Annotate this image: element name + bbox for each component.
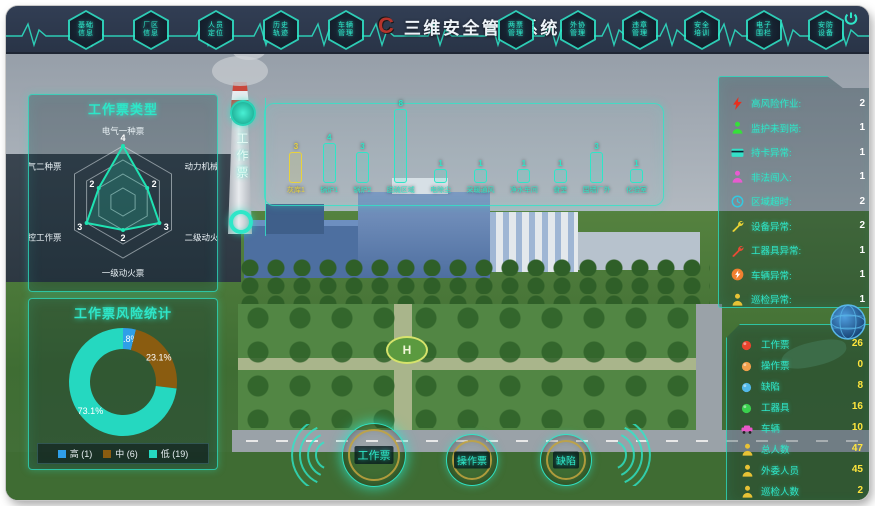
area-bar-column (474, 169, 487, 184)
globe-icon[interactable] (828, 302, 868, 342)
area-bar-label: 食堂 (553, 185, 567, 195)
radar-axis-label: 电气二种票 (29, 162, 62, 172)
topbar-menu-item[interactable]: 违章管理 (622, 10, 658, 50)
alert-row: 高风险作业:2 (719, 91, 869, 116)
stat-value: 10 (852, 422, 863, 433)
scene-building (266, 204, 324, 234)
menu-label-line1: 人员 (208, 22, 224, 31)
legend-text: 高 (1) (70, 447, 93, 460)
area-bar-label: 电除尘 (430, 185, 451, 195)
legend-swatch (149, 450, 157, 458)
legend-item: 中 (6) (103, 447, 138, 460)
alert-row: 非法闯入:1 (719, 165, 869, 190)
app-logo: C (378, 13, 394, 39)
menu-label-line2: 轨迹 (273, 30, 289, 39)
area-bar-label: 化验室 (626, 185, 647, 195)
area-bar: 1化验室 (626, 159, 647, 196)
legend-swatch (103, 450, 111, 458)
area-bar-value: 3 (360, 142, 364, 151)
bottom-button-defect[interactable]: 缺陷 (540, 434, 592, 486)
stat-label: 缺陷 (761, 379, 849, 393)
alert-value: 1 (859, 147, 865, 158)
topbar-menu-item[interactable]: 电子围栏 (746, 10, 782, 50)
lightning-icon (731, 97, 744, 110)
area-bar-column (434, 169, 447, 184)
radar-axis-label: 一级动火票 (102, 268, 145, 278)
alert-label: 监护未到岗: (751, 121, 852, 135)
stat-row: 外委人员45 (727, 459, 869, 480)
scene-smoke (212, 56, 268, 86)
warning-icon (731, 268, 744, 281)
person-icon (741, 485, 753, 497)
area-bar-column (323, 143, 336, 183)
arc-decoration-right (602, 424, 674, 486)
area-bar-label: 采暖通风 (467, 185, 495, 195)
menu-label-line1: 历史 (273, 22, 289, 31)
menu-hex-icon: 违章管理 (624, 12, 656, 48)
menu-label-line1: 两票 (508, 22, 524, 31)
alert-row: 监护未到岗:1 (719, 116, 869, 141)
person-icon (731, 121, 744, 134)
legend-text: 低 (19) (161, 447, 189, 460)
menu-hex-icon: 电子围栏 (748, 12, 780, 48)
stat-value: 8 (857, 380, 863, 391)
area-bar-value: 3 (294, 142, 298, 151)
topbar-right-menu: 两票管理外协管理违章管理安全培训电子围栏安防设备 (498, 10, 844, 50)
menu-label-line2: 围栏 (756, 30, 772, 39)
area-bar-column (394, 109, 407, 183)
stat-label: 操作票 (761, 358, 849, 372)
stat-value: 45 (852, 464, 863, 475)
alert-value: 1 (859, 269, 865, 280)
area-bar: 1电除尘 (430, 159, 451, 196)
alert-value: 2 (859, 98, 865, 109)
area-bar: 3锅炉2 (354, 142, 372, 196)
alert-value: 2 (859, 196, 865, 207)
menu-hex-icon: 安全培训 (686, 12, 718, 48)
area-bar-label: 灰库1 (287, 185, 305, 195)
car-icon (741, 422, 753, 434)
svg-text:2: 2 (120, 233, 125, 243)
menu-label-line2: 信息 (78, 30, 94, 39)
workticket-type-panel: 工作票类型 423232电气一种票动力机械票二级动火票一级动火票热控工作票电气二… (28, 94, 218, 292)
dot-icon (741, 380, 753, 392)
area-bar-column (356, 152, 369, 184)
legend-swatch (58, 450, 66, 458)
dot-icon (741, 359, 753, 371)
scene-trees (238, 258, 710, 306)
stats-panel: 工作票26操作票0缺陷8工器具16车辆10总人数47外委人员45巡检人数2 (726, 324, 869, 500)
svg-text:3: 3 (164, 222, 169, 232)
area-bar-value: 1 (438, 159, 442, 168)
bottom-button-label: 工作票 (355, 446, 394, 464)
bottom-button-label: 操作票 (454, 452, 490, 469)
stat-label: 巡检人数 (761, 484, 849, 498)
legend-item: 低 (19) (149, 447, 189, 460)
area-bar-value: 8 (399, 99, 403, 108)
menu-label-line2: 管理 (508, 30, 524, 39)
radar-axis-label: 电气一种票 (102, 126, 145, 136)
area-bar-label: 净水车间 (510, 185, 538, 195)
stat-label: 外委人员 (761, 463, 844, 477)
bottom-button-workticket[interactable]: 工作票 (342, 423, 406, 487)
area-bar-column (590, 152, 603, 184)
stat-label: 车辆 (761, 421, 844, 435)
menu-hex-icon: 车辆管理 (330, 12, 362, 48)
screenshot-root: H 基础信息厂区信息人员定位历史轨迹车辆管理 C 三维安全管控系统 两票管理外协… (0, 0, 875, 506)
area-bar-column (630, 169, 643, 184)
stat-row: 巡检人数2 (727, 480, 869, 500)
topbar-menu-item[interactable]: 基础信息 (68, 10, 104, 50)
area-ticket-panel: 3灰库14锅炉13锅炉28脱硫区域1电除尘1采暖通风1净水车间1食堂3围墙厂外1… (264, 103, 664, 206)
menu-label-line2: 管理 (338, 30, 354, 39)
menu-label-line2: 定位 (208, 30, 224, 39)
area-bar: 1采暖通风 (467, 159, 495, 196)
app-window: H 基础信息厂区信息人员定位历史轨迹车辆管理 C 三维安全管控系统 两票管理外协… (6, 6, 869, 500)
area-bar: 4锅炉1 (320, 133, 338, 195)
stat-row: 缺陷8 (727, 375, 869, 396)
scene-road (696, 304, 722, 434)
stat-row: 总人数47 (727, 438, 869, 459)
area-bar-label: 锅炉1 (320, 185, 338, 195)
area-bar-value: 1 (522, 159, 526, 168)
person-icon (741, 464, 753, 476)
alerts-panel: 高风险作业:2监护未到岗:1持卡异常:1非法闯入:1区域超时:2设备异常:2工器… (718, 76, 869, 308)
stat-row: 操作票0 (727, 354, 869, 375)
alert-label: 区域超时: (751, 194, 852, 208)
area-bar-label: 围墙厂外 (583, 185, 611, 195)
dot-icon (741, 338, 753, 350)
wrench-icon (731, 244, 744, 257)
stat-value: 47 (852, 443, 863, 454)
topbar-menu-item[interactable]: 外协管理 (560, 10, 596, 50)
menu-hex-icon: 外协管理 (562, 12, 594, 48)
bottom-button-label: 缺陷 (553, 452, 579, 469)
topbar-menu-item[interactable]: 历史轨迹 (263, 10, 299, 50)
alert-value: 1 (859, 171, 865, 182)
stat-value: 2 (857, 485, 863, 496)
alert-value: 1 (859, 245, 865, 256)
area-bar: 1食堂 (553, 159, 567, 196)
stats-list: 工作票26操作票0缺陷8工器具16车辆10总人数47外委人员45巡检人数2 (727, 325, 869, 500)
donut-legend: 高 (1)中 (6)低 (19) (37, 443, 209, 464)
legend-item: 高 (1) (58, 447, 93, 460)
topbar-menu-item[interactable]: 安防设备 (808, 10, 844, 50)
svg-text:3: 3 (77, 222, 82, 232)
menu-label-line1: 违章 (632, 22, 648, 31)
menu-label-line2: 设备 (818, 30, 834, 39)
svg-text:2: 2 (152, 179, 157, 189)
menu-label-line1: 车辆 (338, 22, 354, 31)
alert-label: 高风险作业: (751, 96, 852, 110)
alert-value: 2 (859, 220, 865, 231)
menu-hex-icon: 历史轨迹 (265, 12, 297, 48)
left-tab-label: 工作票 (234, 132, 251, 183)
person-icon (731, 170, 744, 183)
donut-slice-label: 23.1% (146, 352, 172, 362)
topbar-menu-item[interactable]: 安全培训 (684, 10, 720, 50)
area-bar-label: 锅炉2 (354, 185, 372, 195)
arc-decoration-left (268, 424, 340, 486)
topbar-left-menu: 基础信息厂区信息人员定位历史轨迹车辆管理 (68, 10, 364, 50)
alert-row: 区域超时:2 (719, 189, 869, 214)
clock-icon (731, 195, 744, 208)
area-bar-value: 1 (634, 159, 638, 168)
menu-label-line1: 厂区 (143, 22, 159, 31)
alert-label: 设备异常: (751, 219, 852, 233)
stat-row: 工器具16 (727, 396, 869, 417)
stat-value: 0 (857, 359, 863, 370)
left-tab-workticket[interactable]: 工作票 (222, 98, 266, 236)
workticket-risk-panel: 工作票风险统计 3.8%23.1%73.1% 高 (1)中 (6)低 (19) (28, 298, 218, 470)
menu-label-line1: 安防 (818, 22, 834, 31)
menu-label-line1: 安全 (694, 22, 710, 31)
alert-row: 车辆异常:1 (719, 263, 869, 288)
menu-hex-icon: 两票管理 (500, 12, 532, 48)
person-icon (741, 443, 753, 455)
menu-hex-icon: 基础信息 (70, 12, 102, 48)
legend-text: 中 (6) (115, 447, 138, 460)
topbar-menu-item[interactable]: 车辆管理 (328, 10, 364, 50)
tab-ring-icon (229, 210, 253, 234)
card-icon (731, 146, 744, 159)
alert-label: 持卡异常: (751, 145, 852, 159)
alert-value: 1 (859, 122, 865, 133)
menu-label-line1: 基础 (78, 22, 94, 31)
alert-label: 车辆异常: (751, 268, 852, 282)
topbar-menu-item[interactable]: 两票管理 (498, 10, 534, 50)
radar-axis-label: 动力机械票 (184, 162, 217, 172)
power-icon[interactable] (843, 11, 859, 27)
wrench-icon (731, 219, 744, 232)
menu-label-line2: 培训 (694, 30, 710, 39)
stat-row: 车辆10 (727, 417, 869, 438)
menu-hex-icon: 厂区信息 (135, 12, 167, 48)
alert-row: 设备异常:2 (719, 214, 869, 239)
area-bar-value: 4 (327, 133, 331, 142)
radar-axis-label: 二级动火票 (184, 233, 217, 243)
menu-label-line1: 外协 (570, 22, 586, 31)
radar-panel-title: 工作票类型 (29, 99, 217, 118)
topbar: 基础信息厂区信息人员定位历史轨迹车辆管理 C 三维安全管控系统 两票管理外协管理… (6, 6, 869, 54)
stat-label: 总人数 (761, 442, 844, 456)
svg-text:2: 2 (89, 179, 94, 189)
bottom-button-operateticket[interactable]: 操作票 (446, 434, 498, 486)
radar-axis-label: 热控工作票 (29, 233, 62, 243)
scene-helipad: H (386, 336, 428, 364)
menu-hex-icon: 人员定位 (200, 12, 232, 48)
donut-panel-title: 工作票风险统计 (29, 303, 217, 322)
topbar-menu-item[interactable]: 人员定位 (198, 10, 234, 50)
alert-label: 工器具异常: (751, 243, 852, 257)
alert-list: 高风险作业:2监护未到岗:1持卡异常:1非法闯入:1区域超时:2设备异常:2工器… (719, 77, 869, 312)
area-bar-label: 脱硫区域 (387, 185, 415, 195)
area-bar-column (517, 169, 530, 184)
area-bar-value: 1 (558, 159, 562, 168)
donut-slice-label: 73.1% (78, 406, 104, 416)
area-bar-column (289, 152, 302, 184)
menu-label-line2: 管理 (570, 30, 586, 39)
stat-value: 16 (852, 401, 863, 412)
area-bar: 8脱硫区域 (387, 99, 415, 195)
area-bar-column (554, 169, 567, 184)
area-bar: 3灰库1 (287, 142, 305, 196)
area-bar: 1净水车间 (510, 159, 538, 196)
menu-label-line2: 信息 (143, 30, 159, 39)
menu-label-line1: 电子 (756, 22, 772, 31)
menu-hex-icon: 安防设备 (810, 12, 842, 48)
tab-circle-icon (230, 100, 256, 126)
area-bar: 3围墙厂外 (583, 142, 611, 196)
dot-icon (741, 401, 753, 413)
area-bar-chart: 3灰库14锅炉13锅炉28脱硫区域1电除尘1采暖通风1净水车间1食堂3围墙厂外1… (287, 99, 647, 195)
alert-label: 非法闯入: (751, 170, 852, 184)
person-icon (731, 293, 744, 306)
area-bar-value: 1 (478, 159, 482, 168)
alert-row: 工器具异常:1 (719, 238, 869, 263)
donut-chart: 3.8%23.1%73.1% (29, 322, 217, 444)
stat-label: 工器具 (761, 400, 844, 414)
alert-row: 持卡异常:1 (719, 140, 869, 165)
menu-label-line2: 管理 (632, 30, 648, 39)
area-bar-value: 3 (594, 142, 598, 151)
radar-chart: 423232电气一种票动力机械票二级动火票一级动火票热控工作票电气二种票 (29, 118, 217, 290)
scene-trees (242, 306, 694, 428)
topbar-menu-item[interactable]: 厂区信息 (133, 10, 169, 50)
